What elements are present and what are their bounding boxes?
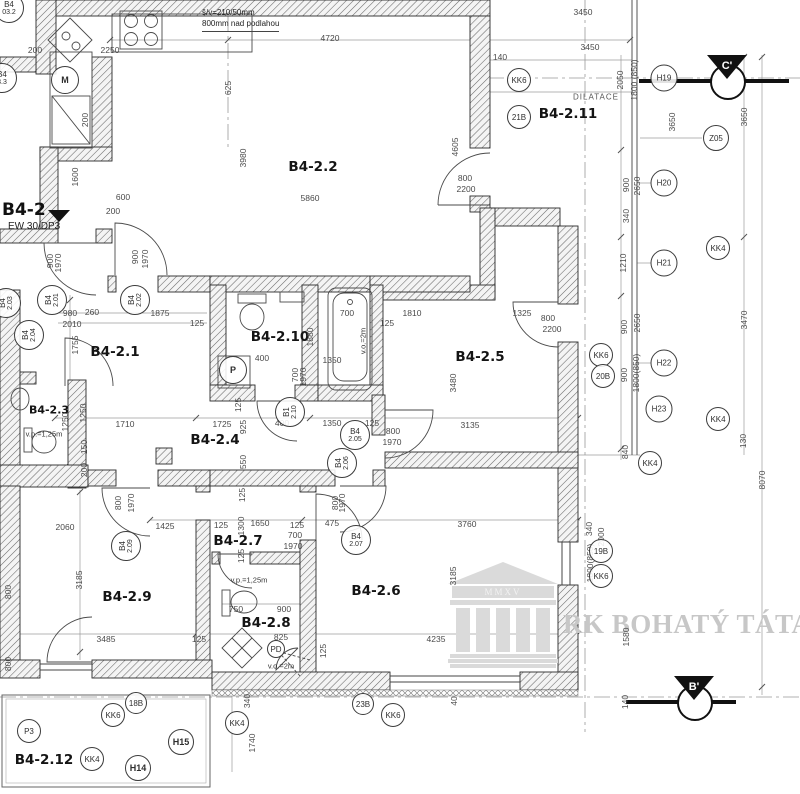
plan-note: v.p.=1,25m <box>231 576 268 585</box>
ref-marker-19b: 19B <box>589 539 613 563</box>
dimension-label: 125 <box>192 635 206 644</box>
ref-marker-kk6: KK6 <box>381 703 405 727</box>
dimension-label: 3470 <box>740 311 749 330</box>
dimension-label: 475 <box>325 519 339 528</box>
ref-marker-h22: H22 <box>651 350 678 377</box>
ref-marker-h14: H14 <box>125 755 151 781</box>
dimension-label: 4720 <box>321 34 340 43</box>
dimension-label: 900 <box>620 368 629 382</box>
dimension-label: 200 <box>28 46 42 55</box>
room-label-b4-2-5: B4-2.5 <box>455 349 504 365</box>
dimension-label: 900 <box>622 178 631 192</box>
dimension-label: 1210 <box>619 254 628 273</box>
dimension-label: 840 <box>621 445 630 459</box>
dimension-label: 125 <box>214 521 228 530</box>
floor-plan: MMXV RK BOHATÝ TÁTA B4-2 EW 30/DP3 š/v=2… <box>0 0 800 794</box>
dimension-label: 1650 <box>251 519 270 528</box>
dimension-label: 125 <box>234 398 243 412</box>
door-marker-2-09: B42.09 <box>111 531 141 561</box>
dimension-label: 550 <box>239 455 248 469</box>
dimension-label: 340 <box>622 209 631 223</box>
dimension-label: 3135 <box>461 421 480 430</box>
watermark-inscription: MMXV <box>484 587 521 597</box>
ref-marker-h19: H19 <box>651 65 678 92</box>
room-label-b4-2-10: B4-2.10 <box>251 329 310 345</box>
ref-marker-kk6: KK6 <box>589 564 613 588</box>
dimension-label: 3185 <box>449 567 458 586</box>
ref-marker-p3: P3 <box>17 719 41 743</box>
dimension-label: 1970 <box>383 438 402 447</box>
dimension-label: 3480 <box>449 374 458 393</box>
dimension-label: 1800 (850) <box>630 59 639 100</box>
dimension-label: 600 <box>116 193 130 202</box>
ref-marker-23b: 23B <box>352 693 374 715</box>
dimension-label: 900 <box>277 605 291 614</box>
dimension-label: 3650 <box>668 113 677 132</box>
dimension-label: 1710 <box>116 420 135 429</box>
door-marker-2-02: B42.02 <box>120 285 150 315</box>
dimension-label: 1350 <box>323 419 342 428</box>
dimension-label: 140 <box>621 695 630 709</box>
ref-marker-kk4: KK4 <box>80 747 104 771</box>
room-label-b4-2-11: B4-2.11 <box>539 106 598 122</box>
title-block: B4-2 EW 30/DP3 <box>2 200 60 232</box>
dimension-label: 1970 <box>299 368 308 387</box>
dimension-label: 1880 <box>306 328 315 347</box>
dimension-label: 4235 <box>427 635 446 644</box>
ref-marker-h23: H23 <box>646 396 673 423</box>
dimension-label: 2200 <box>457 185 476 194</box>
dimension-label: 1755 <box>71 336 80 355</box>
dimension-label: 4605 <box>451 138 460 157</box>
ref-marker-kk6: KK6 <box>507 68 531 92</box>
ref-marker-kk4: KK4 <box>638 451 662 475</box>
dimension-label: 625 <box>224 81 233 95</box>
plan-note: v.o.=2m <box>268 662 294 671</box>
dimension-label: 925 <box>239 420 248 434</box>
plan-note: v.p.=1,25m <box>26 430 63 439</box>
watermark-logo: MMXV <box>448 562 558 668</box>
dimension-label: 1740 <box>248 734 257 753</box>
ref-marker-h15: H15 <box>168 729 194 755</box>
ref-marker-pd: PD <box>267 640 285 658</box>
door-marker-2-10: B12.10 <box>275 397 305 427</box>
dimension-label: 125 <box>290 521 304 530</box>
installation-note: š/v=210/50mm 800mm nad podlahou <box>202 8 279 32</box>
dimension-label: 3760 <box>458 520 477 529</box>
ref-marker-p: P <box>219 356 247 384</box>
dimension-label: 1725 <box>213 420 232 429</box>
dimension-label: 750 <box>229 605 243 614</box>
dimension-label: 800 <box>114 496 123 510</box>
dimension-label: 260 <box>85 308 99 317</box>
dimension-label: 2250 <box>101 46 120 55</box>
dimension-label: 125 <box>238 488 247 502</box>
ref-marker-m: M <box>51 66 79 94</box>
wc-toilet-icon <box>238 294 266 330</box>
dimension-label: 3650 <box>740 108 749 127</box>
kitchen-stove-icon <box>120 11 162 49</box>
dimension-label: 130 <box>739 434 748 448</box>
dimension-label: 3980 <box>239 149 248 168</box>
plan-note: v.o.=2m <box>359 328 368 354</box>
kitchen-counter <box>50 14 252 148</box>
dimension-label: 125 <box>380 319 394 328</box>
dimension-label: 1300 <box>237 517 246 536</box>
dimension-label: 800 <box>458 174 472 183</box>
dimension-label: 140 <box>493 53 507 62</box>
note-line-2: 800mm nad podlahou <box>202 19 279 30</box>
wc-sink-icon <box>280 292 304 302</box>
room-label-b4-2-2: B4-2.2 <box>288 159 337 175</box>
dimension-label: 2200 <box>543 325 562 334</box>
section-marker-b: B' <box>676 674 712 720</box>
dimension-label: 3450 <box>574 8 593 17</box>
door-marker-2-06: B42.06 <box>327 448 357 478</box>
door-marker-2-07: B42.07 <box>341 525 371 555</box>
watermark-text: RK BOHATÝ TÁTA <box>563 609 800 640</box>
dimension-label: 800 <box>386 427 400 436</box>
room-label-b4-2-1: B4-2.1 <box>90 344 139 360</box>
dimension-label: 1580 <box>622 628 631 647</box>
dimension-label: 125 <box>237 549 246 563</box>
ref-marker-kk4: KK4 <box>225 711 249 735</box>
dimension-label: 1325 <box>513 309 532 318</box>
dimension-label: 980 <box>63 309 77 318</box>
dimension-label: 400 <box>255 354 269 363</box>
ref-marker-kk6: KK6 <box>101 703 125 727</box>
room-label-b4-2-6: B4-2.6 <box>351 583 400 599</box>
door-marker-2-01: B42.01 <box>37 285 67 315</box>
dimension-label: 200 <box>106 207 120 216</box>
dimension-label: 1970 <box>141 250 150 269</box>
door-marker-2-05: B42.05 <box>340 420 370 450</box>
dimension-label: 900 <box>131 250 140 264</box>
dimension-label: 1970 <box>127 494 136 513</box>
dimension-label: 2650 <box>633 314 642 333</box>
ref-marker-20b: 20B <box>591 364 615 388</box>
ref-marker-h21: H21 <box>651 250 678 277</box>
dimension-label: 3185 <box>75 571 84 590</box>
plan-note: DILATACE <box>573 93 619 102</box>
dimension-label: 2010 <box>63 320 82 329</box>
dimension-label: 8070 <box>758 471 767 490</box>
dimension-label: 800 <box>541 314 555 323</box>
dimension-label: 125 <box>319 644 328 658</box>
door-marker-2-04: B42.04 <box>14 320 44 350</box>
dimension-label: 200 <box>81 113 90 127</box>
dimension-label: 2650 <box>633 177 642 196</box>
dimension-label: 1970 <box>54 254 63 273</box>
dimension-label: 1970 <box>284 542 303 551</box>
dimension-label: 2050 <box>616 71 625 90</box>
dimension-label: 1810 <box>403 309 422 318</box>
dimension-label: 1970 <box>338 494 347 513</box>
dimension-label: 800 <box>4 585 13 599</box>
dimension-label: 1800(850) <box>632 354 641 393</box>
dimension-label: 1250 <box>61 413 70 432</box>
dimension-label: 1250 <box>79 404 88 423</box>
dimension-label: 125 <box>190 319 204 328</box>
dimension-label: 1425 <box>156 522 175 531</box>
dimension-label: 1600 <box>71 168 80 187</box>
note-line-1: š/v=210/50mm <box>202 8 279 19</box>
dimension-label: 800 <box>4 657 13 671</box>
dimension-label: 900 <box>620 320 629 334</box>
dimension-label: 1875 <box>151 309 170 318</box>
room-label-b4-2-9: B4-2.9 <box>102 589 151 605</box>
dimension-label: 5860 <box>301 194 320 203</box>
dimension-label: 150 <box>80 440 89 454</box>
ref-marker-z05: Z05 <box>703 125 729 151</box>
room-label-b4-2-4: B4-2.4 <box>190 432 239 448</box>
ref-marker-18b: 18B <box>125 692 147 714</box>
ref-marker-h20: H20 <box>651 170 678 197</box>
fire-rating-label: EW 30/DP3 <box>8 221 60 232</box>
dimension-label: 340 <box>585 522 594 536</box>
dimension-label: 3485 <box>97 635 116 644</box>
title-triangle-icon <box>48 210 70 222</box>
dimension-label: 340 <box>243 694 252 708</box>
dimension-label: 1350 <box>323 356 342 365</box>
dimension-label: 700 <box>340 309 354 318</box>
dimension-label: 40 <box>450 696 459 705</box>
dimension-label: 700 <box>288 531 302 540</box>
dimension-label: 2060 <box>56 523 75 532</box>
ref-marker-kk4: KK4 <box>706 236 730 260</box>
room-label-b4-2-8: B4-2.8 <box>241 615 290 631</box>
dimension-label: 3450 <box>581 43 600 52</box>
section-marker-c: C' <box>709 53 745 99</box>
dimension-label: 200 <box>80 463 89 477</box>
ref-marker-kk4: KK4 <box>706 407 730 431</box>
ref-marker-21b: 21B <box>507 105 531 129</box>
room-label-b4-2-12: B4-2.12 <box>15 752 74 768</box>
